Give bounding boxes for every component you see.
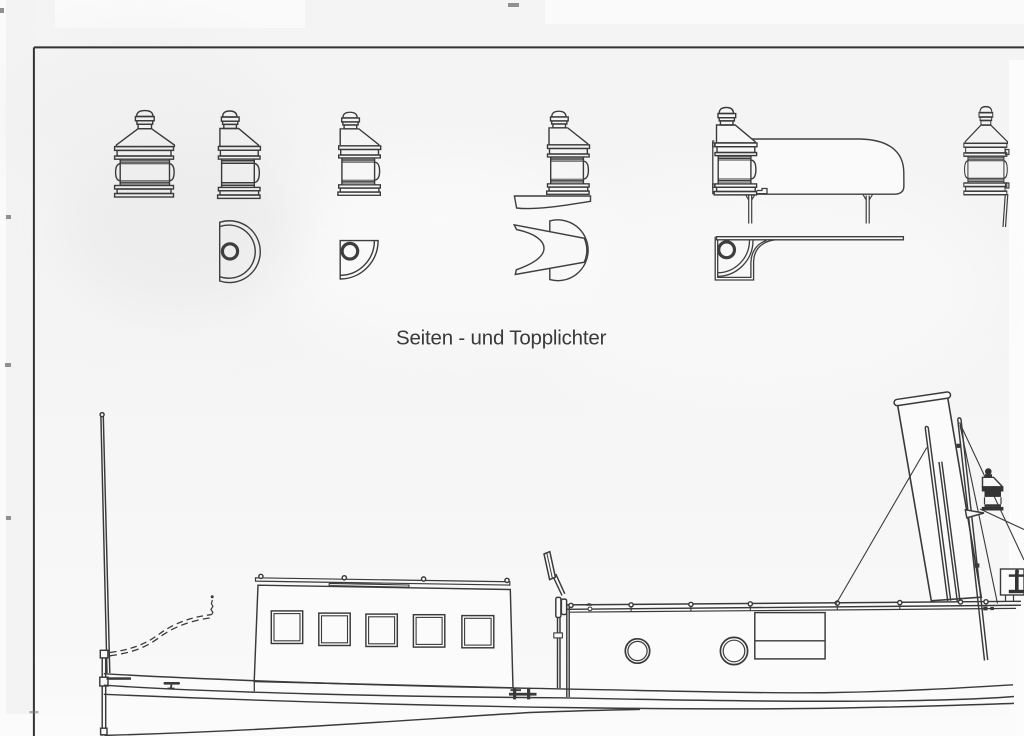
svg-text:Seiten - und Topplichter: Seiten - und Topplichter xyxy=(396,327,607,350)
